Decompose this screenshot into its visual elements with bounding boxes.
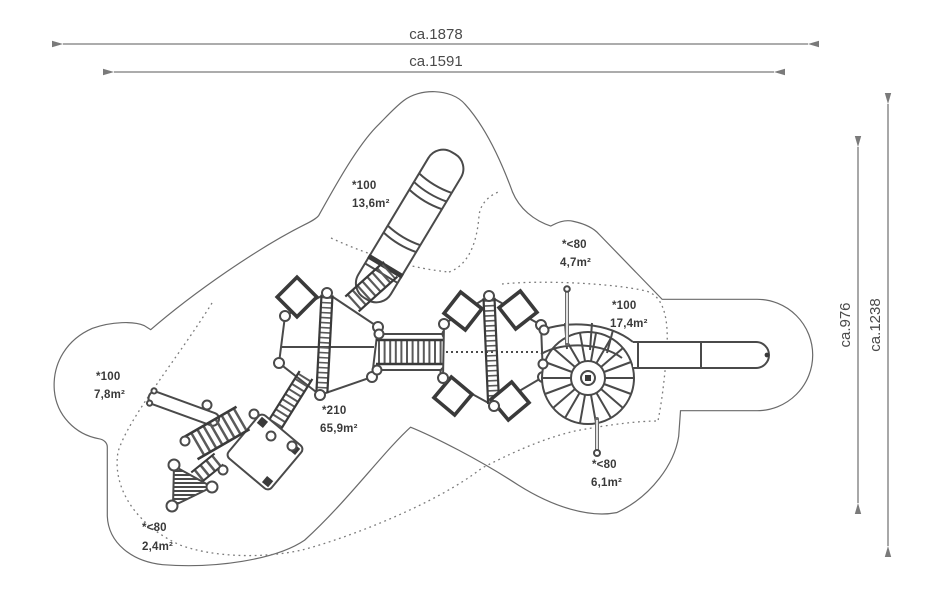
zone-code: *100 xyxy=(612,300,636,312)
straight-slide xyxy=(633,342,769,368)
dimension-value: ca.1238 xyxy=(867,298,884,351)
dimension-value: ca.976 xyxy=(837,302,854,347)
dimension-value: ca.1878 xyxy=(409,26,462,43)
zone-code: *100 xyxy=(352,180,376,192)
zone-code: *<80 xyxy=(592,459,617,471)
zone-area: 13,6m² xyxy=(352,198,390,210)
zone-area: 6,1m² xyxy=(591,477,622,489)
dimension-value: ca.1591 xyxy=(409,53,462,70)
zone-area: 2,4m² xyxy=(142,541,173,553)
zone-code: *100 xyxy=(96,371,120,383)
dimension-right-outer: ca.1238 xyxy=(867,104,888,546)
playground-plan-svg: *100 13,6m² *<80 4,7m² *100 17,4m² *100 … xyxy=(0,0,950,600)
zone-area: 7,8m² xyxy=(94,389,125,401)
zone-area: 17,4m² xyxy=(610,318,648,330)
dimension-top-inner: ca.1591 xyxy=(114,53,774,72)
climbing-pole-top xyxy=(564,286,570,344)
zone-code: *<80 xyxy=(562,239,587,251)
zone-area: 65,9m² xyxy=(320,423,358,435)
zone-code: *210 xyxy=(322,405,346,417)
zone-code: *<80 xyxy=(142,522,167,534)
zone-area: 4,7m² xyxy=(560,257,591,269)
dimension-right-inner: ca.976 xyxy=(837,147,858,503)
plan-drawing-canvas: *100 13,6m² *<80 4,7m² *100 17,4m² *100 … xyxy=(0,0,950,600)
dimension-top-outer: ca.1878 xyxy=(63,26,808,44)
